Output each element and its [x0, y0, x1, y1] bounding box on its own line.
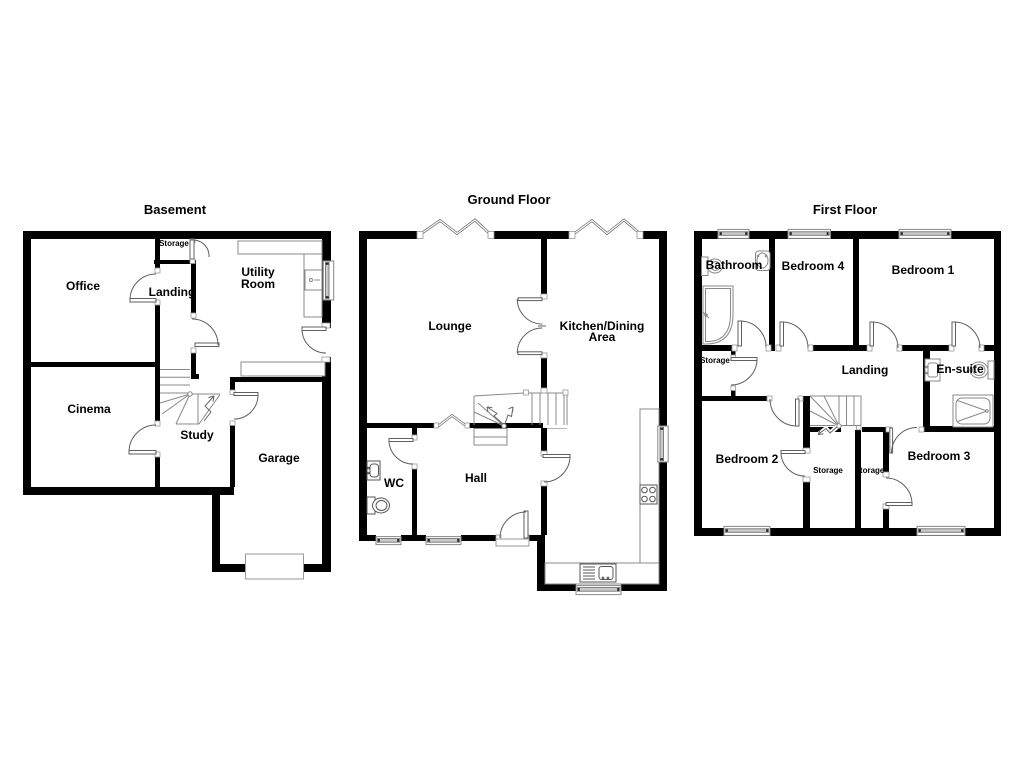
svg-text:Room: Room — [241, 277, 275, 291]
svg-text:WC: WC — [384, 476, 404, 490]
svg-text:Study: Study — [180, 428, 214, 442]
svg-text:Lounge: Lounge — [428, 319, 472, 333]
svg-text:Landing: Landing — [149, 285, 196, 299]
svg-text:Storage: Storage — [159, 239, 189, 248]
svg-text:Office: Office — [66, 279, 100, 293]
svg-text:Area: Area — [589, 330, 616, 344]
svg-text:En-suite: En-suite — [936, 362, 984, 376]
svg-text:Storage: Storage — [855, 466, 885, 475]
svg-text:Ground Floor: Ground Floor — [467, 192, 550, 207]
svg-text:Storage: Storage — [700, 356, 730, 365]
svg-text:Bedroom 2: Bedroom 2 — [716, 452, 779, 466]
svg-text:Storage: Storage — [813, 466, 843, 475]
svg-text:Bedroom 1: Bedroom 1 — [892, 263, 955, 277]
svg-text:Garage: Garage — [258, 451, 300, 465]
svg-text:Bedroom 4: Bedroom 4 — [782, 259, 845, 273]
svg-text:Basement: Basement — [144, 202, 207, 217]
svg-text:Hall: Hall — [465, 471, 487, 485]
svg-text:Cinema: Cinema — [67, 402, 111, 416]
svg-text:Bathroom: Bathroom — [706, 258, 763, 272]
svg-text:Landing: Landing — [842, 363, 889, 377]
svg-text:Bedroom 3: Bedroom 3 — [908, 449, 971, 463]
svg-text:First Floor: First Floor — [813, 202, 877, 217]
